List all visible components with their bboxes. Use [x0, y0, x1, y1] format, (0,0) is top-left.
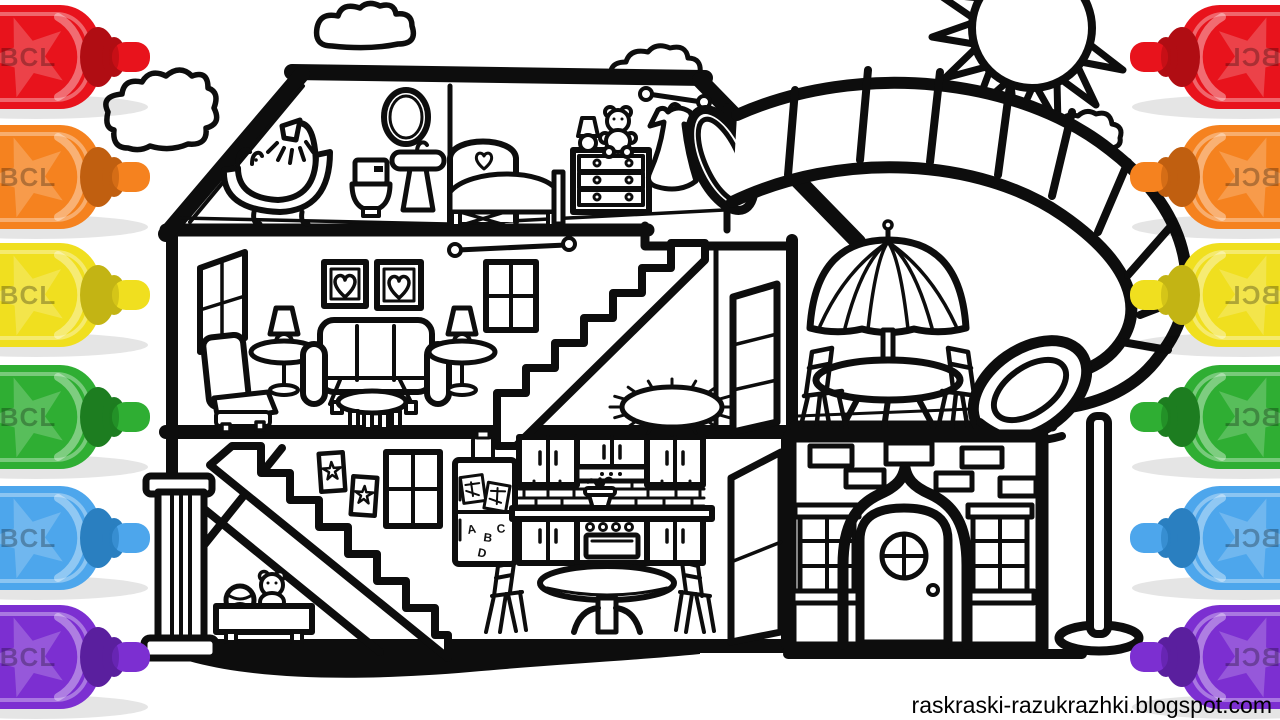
dresser — [573, 150, 649, 212]
marker-yellow-left: BCL — [0, 243, 150, 357]
magnet-letter: C — [496, 521, 506, 536]
teddy-bear — [600, 107, 636, 157]
marker-label: BCL — [0, 402, 56, 432]
curtain-rod — [449, 238, 575, 256]
marker-label: BCL — [1224, 642, 1280, 672]
front-door — [860, 508, 948, 644]
bed — [450, 142, 563, 227]
star-picture-1 — [319, 452, 346, 492]
cloud-top — [317, 3, 414, 47]
marker-label: BCL — [0, 42, 56, 72]
coffee-table — [338, 391, 406, 429]
hall-door — [733, 284, 777, 432]
roof-top — [292, 72, 705, 78]
bathroom — [224, 90, 444, 224]
brick-facade — [790, 436, 1042, 648]
kitchen-door-open — [731, 452, 781, 642]
watermark: raskraski-razukrazhki.blogspot.com — [912, 692, 1272, 719]
kitchen — [512, 437, 712, 563]
marker-label: BCL — [1224, 42, 1280, 72]
patio — [800, 221, 982, 430]
marker-label: BCL — [0, 162, 56, 192]
stove — [577, 519, 647, 563]
picture-heart-2 — [377, 262, 421, 308]
marker-red-left: BCL — [0, 5, 150, 119]
shower — [268, 120, 316, 170]
picture-heart-1 — [324, 262, 366, 306]
shower-spray-icon — [268, 142, 313, 163]
marker-blue-left: BCL — [0, 486, 150, 600]
column — [144, 476, 216, 658]
water-slide — [732, 70, 1192, 409]
dining-chair-right — [676, 562, 714, 632]
marker-blue-right: BCL — [1130, 486, 1280, 600]
slide-support-pole — [1059, 416, 1139, 651]
table-lamp — [578, 118, 598, 151]
marker-label: BCL — [0, 280, 56, 310]
sink — [392, 142, 444, 210]
marker-green-left: BCL — [0, 365, 150, 479]
marker-label: BCL — [0, 642, 56, 672]
fridge: ABCD — [455, 431, 515, 564]
kitchen-window — [386, 452, 440, 526]
illustration: ABCD — [0, 0, 1280, 720]
dining-chair-left — [486, 563, 526, 632]
fridge-drawing-1 — [460, 475, 485, 504]
door-knob — [928, 585, 938, 595]
marker-purple-left: BCL — [0, 605, 150, 719]
toilet — [352, 160, 390, 216]
coloring-page: ABCD — [0, 0, 1280, 720]
mirror — [384, 90, 428, 144]
dining-table — [540, 566, 674, 632]
marker-orange-right: BCL — [1130, 125, 1280, 239]
marker-label: BCL — [1224, 523, 1280, 553]
marker-label: BCL — [1224, 162, 1280, 192]
marker-green-right: BCL — [1130, 365, 1280, 479]
marker-red-right: BCL — [1130, 5, 1280, 119]
toy-bench — [216, 606, 312, 642]
rug — [622, 387, 722, 427]
window-right — [486, 262, 536, 330]
marker-label: BCL — [1224, 280, 1280, 310]
marker-label: BCL — [0, 523, 56, 553]
star-picture-2 — [351, 476, 378, 516]
marker-label: BCL — [1224, 402, 1280, 432]
fridge-drawing-2 — [484, 482, 510, 511]
facade-window-right — [966, 505, 1034, 603]
